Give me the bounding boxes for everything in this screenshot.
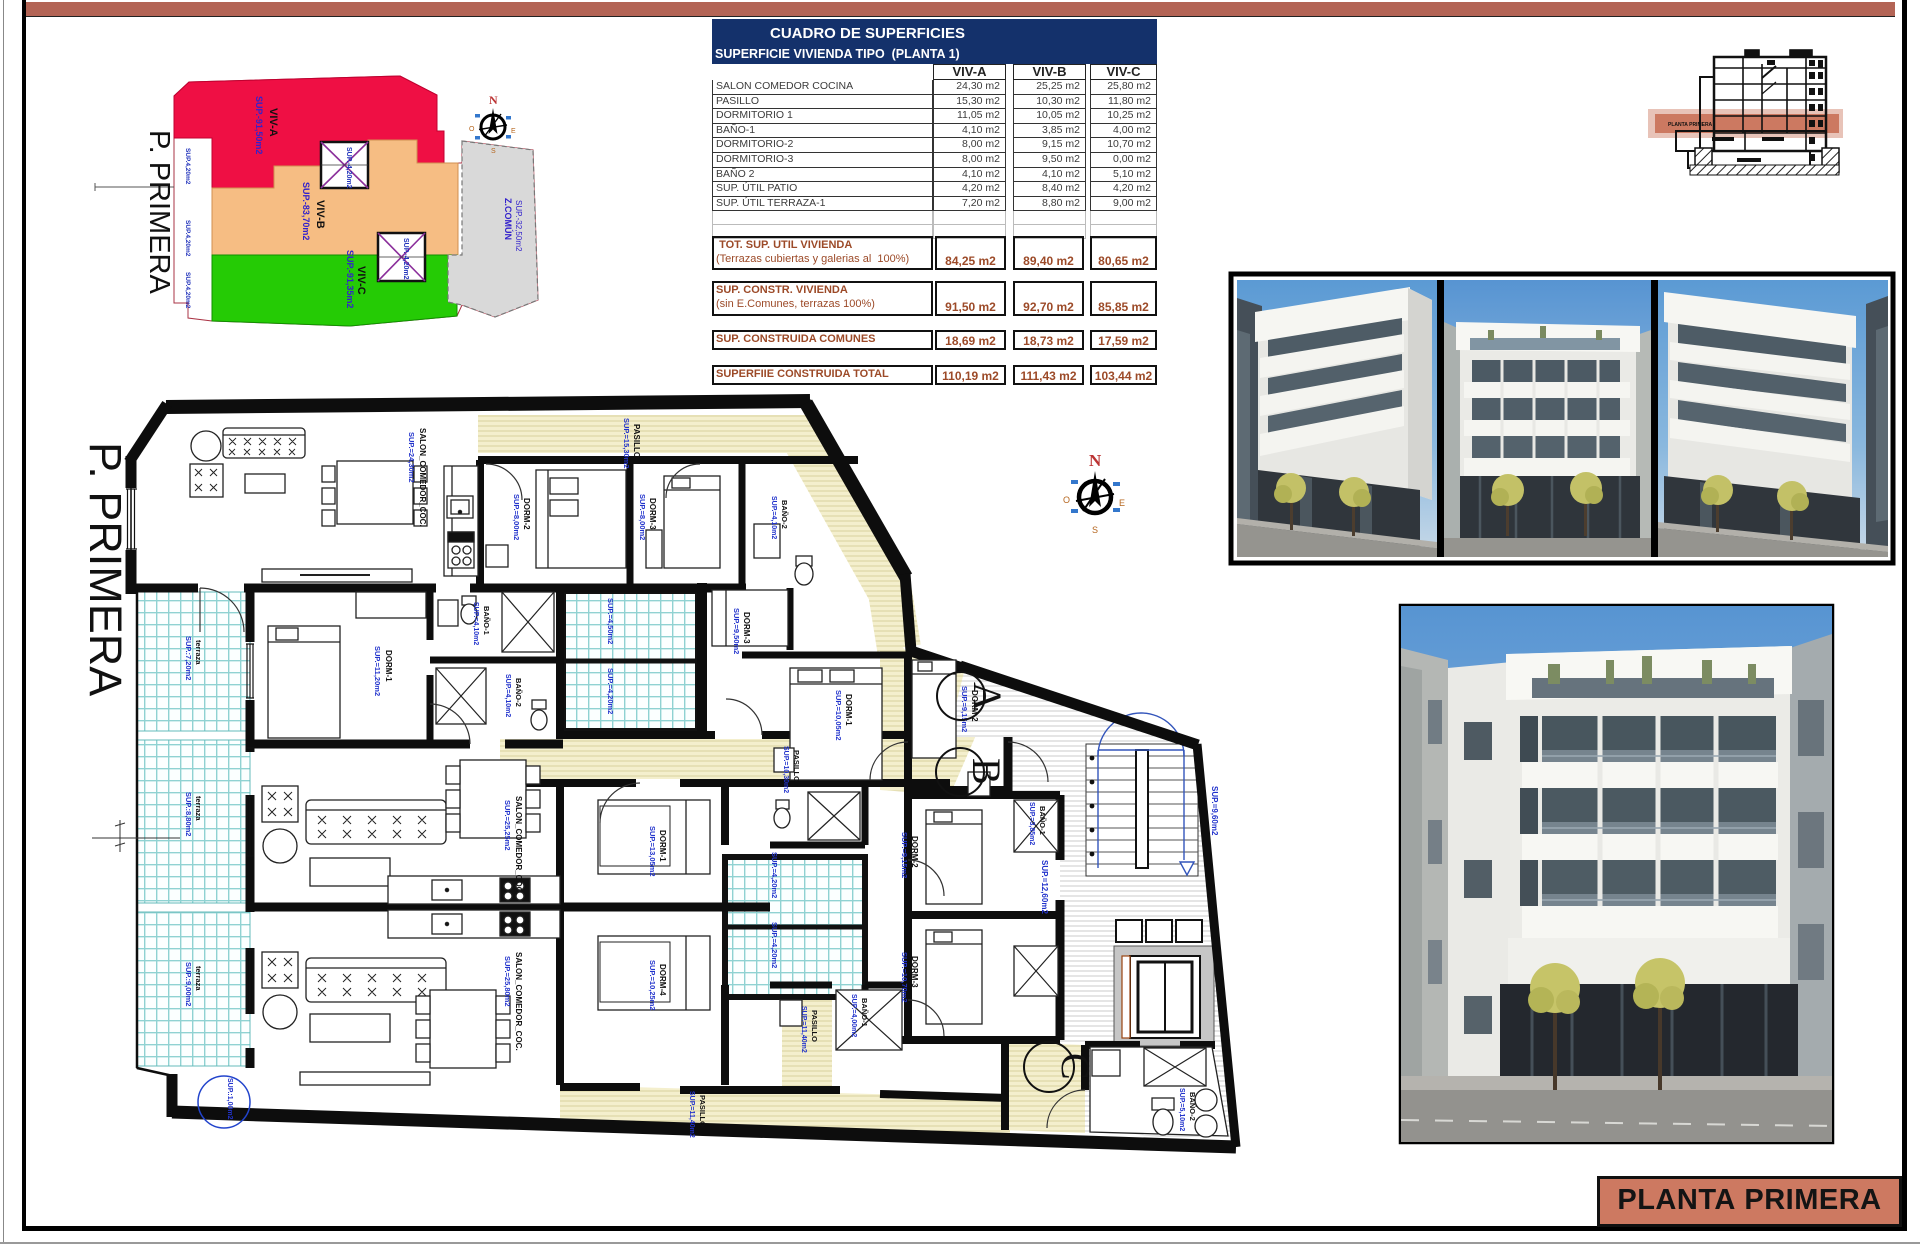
svg-text:SUP.=9,60m2: SUP.=9,60m2 <box>1210 786 1219 836</box>
svg-text:terraza: terraza <box>194 966 203 991</box>
svg-text:DORM-1: DORM-1 <box>384 650 393 682</box>
svg-text:SUP.=4,10m2: SUP.=4,10m2 <box>472 602 479 645</box>
svg-text:SUP.=13,05m2: SUP.=13,05m2 <box>648 826 657 877</box>
svg-text:SUP.:1,00m2: SUP.:1,00m2 <box>226 1078 233 1120</box>
svg-text:DORM-2: DORM-2 <box>910 836 919 868</box>
svg-text:P. PRIMERA: P. PRIMERA <box>143 130 175 295</box>
svg-text:SUP.:7,20m2: SUP.:7,20m2 <box>184 636 193 680</box>
svg-text:SUP.=4,00m2: SUP.=4,00m2 <box>850 994 857 1037</box>
svg-text:SUP.-83,70m2: SUP.-83,70m2 <box>301 182 311 240</box>
svg-text:O: O <box>469 126 475 133</box>
svg-text:DORM-3: DORM-3 <box>742 612 751 644</box>
svg-text:N: N <box>489 93 498 107</box>
svg-text:SUP.4,20m2: SUP.4,20m2 <box>184 148 191 185</box>
svg-text:PASILLO: PASILLO <box>810 1010 819 1042</box>
svg-text:SUP.=11,20m2: SUP.=11,20m2 <box>373 646 382 696</box>
svg-text:SUP.=9,50m2: SUP.=9,50m2 <box>732 608 741 654</box>
svg-text:SUP.=25,80m2: SUP.=25,80m2 <box>503 956 512 1007</box>
svg-text:SUP.=11,40m2: SUP.=11,40m2 <box>800 1006 807 1053</box>
svg-text:SUP.-91,50m2: SUP.-91,50m2 <box>254 96 264 154</box>
svg-text:SUP.=10,25m2: SUP.=10,25m2 <box>648 960 657 1011</box>
svg-text:PLANTA PRIMERA: PLANTA PRIMERA <box>1668 122 1713 128</box>
svg-text:DORM-4: DORM-4 <box>658 964 667 996</box>
svg-text:SUP.=11,40m2: SUP.=11,40m2 <box>688 1091 695 1138</box>
svg-text:DORM-1: DORM-1 <box>658 830 667 862</box>
svg-text:S: S <box>491 148 496 155</box>
svg-text:PASILLO: PASILLO <box>792 750 801 782</box>
svg-text:SUP.=10,70m2: SUP.=10,70m2 <box>900 952 909 1003</box>
svg-text:SUP.=12,60m2: SUP.=12,60m2 <box>1040 860 1049 914</box>
svg-text:E: E <box>511 128 516 135</box>
svg-text:N: N <box>1089 451 1102 470</box>
svg-text:BAÑO-2: BAÑO-2 <box>780 500 789 529</box>
svg-text:SALON_COMEDOR_COC.: SALON_COMEDOR_COC. <box>418 428 427 527</box>
svg-text:PASILLO: PASILLO <box>632 424 641 458</box>
svg-text:SUP.=4,20m2: SUP.=4,20m2 <box>770 852 779 898</box>
svg-text:SUP.=4,10m2: SUP.=4,10m2 <box>770 496 777 539</box>
svg-text:SUP.=4,10m2: SUP.=4,10m2 <box>504 674 511 717</box>
svg-text:terraza: terraza <box>194 796 203 821</box>
svg-text:VIV-A: VIV-A <box>267 108 279 137</box>
svg-text:Z.COMÚN: Z.COMÚN <box>503 198 514 240</box>
svg-text:BAÑO-2: BAÑO-2 <box>514 678 523 707</box>
svg-text:BAÑO-1: BAÑO-1 <box>1038 806 1047 835</box>
svg-text:SUP.=3,85m2: SUP.=3,85m2 <box>1028 802 1035 845</box>
svg-text:SALON_COMEDOR_COC.: SALON_COMEDOR_COC. <box>514 796 523 895</box>
svg-text:SUP.4,20m2: SUP.4,20m2 <box>184 272 191 309</box>
svg-text:BAÑO-1: BAÑO-1 <box>860 998 869 1027</box>
svg-text:terraza: terraza <box>194 640 203 665</box>
svg-text:DORM-3: DORM-3 <box>648 498 657 530</box>
svg-text:E: E <box>1119 498 1125 508</box>
svg-text:SUP.=4,50m2: SUP.=4,50m2 <box>606 598 615 644</box>
svg-text:SUP.=15,30m2: SUP.=15,30m2 <box>622 418 631 469</box>
svg-text:SUP.-91,35m2: SUP.-91,35m2 <box>345 250 355 308</box>
svg-text:SUP.=8,00m2: SUP.=8,00m2 <box>512 494 521 540</box>
svg-text:PASILLO: PASILLO <box>698 1095 707 1127</box>
svg-text:SUP.=4,20m2: SUP.=4,20m2 <box>770 922 779 968</box>
svg-text:BAÑO-1: BAÑO-1 <box>482 606 491 635</box>
svg-text:B: B <box>964 758 1009 785</box>
svg-text:BAÑO-2: BAÑO-2 <box>1188 1092 1197 1121</box>
svg-text:VIV-B: VIV-B <box>314 200 326 229</box>
svg-text:SALON_COMEDOR_COC.: SALON_COMEDOR_COC. <box>514 952 523 1051</box>
svg-text:SUP.:9,00m2: SUP.:9,00m2 <box>184 962 193 1006</box>
svg-text:SUP.-4,20m2: SUP.-4,20m2 <box>345 147 352 189</box>
svg-text:SUP.=9,15m2: SUP.=9,15m2 <box>900 832 909 878</box>
svg-text:SUP.=10,05m2: SUP.=10,05m2 <box>834 690 843 741</box>
svg-text:SUP.=24,30m2: SUP.=24,30m2 <box>407 432 416 483</box>
svg-text:SUP.-32,50m2: SUP.-32,50m2 <box>514 200 523 252</box>
svg-text:A: A <box>965 682 1010 711</box>
svg-text:DORM-2: DORM-2 <box>522 498 531 530</box>
svg-text:SUP.-4,20m2: SUP.-4,20m2 <box>402 238 409 280</box>
svg-text:O: O <box>1063 495 1070 505</box>
svg-text:DORM-1: DORM-1 <box>844 694 853 726</box>
svg-text:SUP.=10,30m2: SUP.=10,30m2 <box>782 746 789 793</box>
svg-text:SUP.4,20m2: SUP.4,20m2 <box>184 220 191 257</box>
svg-text:DORM-3: DORM-3 <box>910 956 919 988</box>
svg-text:S: S <box>1092 525 1098 535</box>
svg-text:SUP.=4,20m2: SUP.=4,20m2 <box>606 668 615 714</box>
svg-text:SUP.=8,00m2: SUP.=8,00m2 <box>638 494 647 540</box>
svg-text:SUP.:8,80m2: SUP.:8,80m2 <box>184 792 193 836</box>
svg-text:SUP.=25,25m2: SUP.=25,25m2 <box>503 800 512 851</box>
svg-text:SUP.=5,10m2: SUP.=5,10m2 <box>1178 1088 1185 1131</box>
svg-text:P. PRIMERA: P. PRIMERA <box>80 442 131 696</box>
svg-text:VIV-C: VIV-C <box>355 266 367 295</box>
svg-text:C: C <box>1053 1053 1098 1080</box>
